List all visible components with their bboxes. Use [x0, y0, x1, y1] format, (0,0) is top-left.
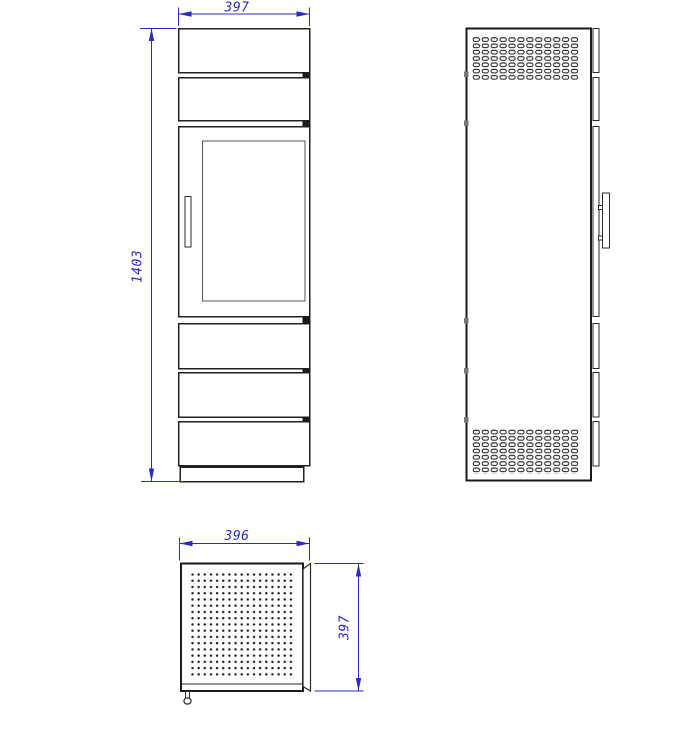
- side-body: [467, 29, 592, 481]
- side-front-edge-strip: [593, 29, 599, 467]
- arrow-down-icon: [356, 678, 361, 691]
- side-strip-top-panel: [593, 29, 599, 73]
- front-door: [179, 127, 310, 317]
- side-strip-drawer-3: [593, 422, 599, 467]
- arrow-right-icon: [297, 541, 310, 546]
- top-knob-foot: [184, 698, 191, 704]
- front-gap-notch: [303, 369, 311, 373]
- top-door-edge-strip: [303, 564, 311, 692]
- front-door-handle: [185, 197, 191, 248]
- arrow-left-icon: [180, 541, 193, 546]
- side-hinge-tick: [464, 72, 469, 78]
- side-door-handle: [599, 193, 610, 248]
- dim-front-height-label: 1403: [131, 250, 146, 283]
- front-gap-notch: [303, 317, 311, 324]
- front-top-panel: [179, 29, 310, 73]
- top-view: [181, 564, 311, 705]
- front-plinth: [180, 467, 304, 482]
- side-bottom-vent-grid: [473, 430, 580, 475]
- dim-front-width: 397: [179, 1, 310, 27]
- dim-top-width: 396: [180, 529, 310, 561]
- side-strip-drawer-2: [593, 373, 599, 418]
- front-second-panel: [179, 78, 310, 121]
- top-vent-dot-grid: [190, 572, 295, 678]
- front-view: [179, 29, 311, 482]
- top-knob: [184, 692, 191, 705]
- side-view: [464, 29, 610, 481]
- side-top-vent-grid: [473, 37, 580, 81]
- front-gap-notch: [303, 121, 311, 127]
- side-hinge-tick: [464, 318, 469, 324]
- arrow-down-icon: [149, 469, 154, 482]
- arrow-left-icon: [179, 11, 192, 16]
- dim-top-depth-label: 397: [338, 615, 353, 641]
- dim-top-width-label: 396: [224, 529, 250, 544]
- front-gap-notch: [303, 418, 311, 422]
- side-hinge-tick: [464, 417, 469, 423]
- cabinet-three-view-drawing: 397 1403: [0, 0, 697, 736]
- dim-front-height: 1403: [131, 28, 184, 482]
- arrow-right-icon: [297, 11, 310, 16]
- front-drawer-1: [179, 324, 310, 369]
- dim-front-width-label: 397: [224, 1, 250, 16]
- dim-top-depth: 397: [315, 564, 364, 692]
- front-drawer-2: [179, 373, 310, 418]
- side-strip-drawer-1: [593, 324, 599, 369]
- side-strip-door: [593, 127, 599, 317]
- front-gap-notch: [303, 73, 311, 78]
- side-hinge-tick: [464, 368, 469, 374]
- arrow-up-icon: [149, 28, 154, 41]
- side-strip-second-panel: [593, 78, 599, 121]
- arrow-up-icon: [356, 564, 361, 577]
- front-door-window: [203, 141, 306, 301]
- side-hinge-tick: [464, 121, 469, 127]
- side-handle-bar: [603, 193, 610, 248]
- technical-drawing-canvas: 397 1403: [0, 0, 697, 736]
- front-drawer-3: [179, 422, 310, 466]
